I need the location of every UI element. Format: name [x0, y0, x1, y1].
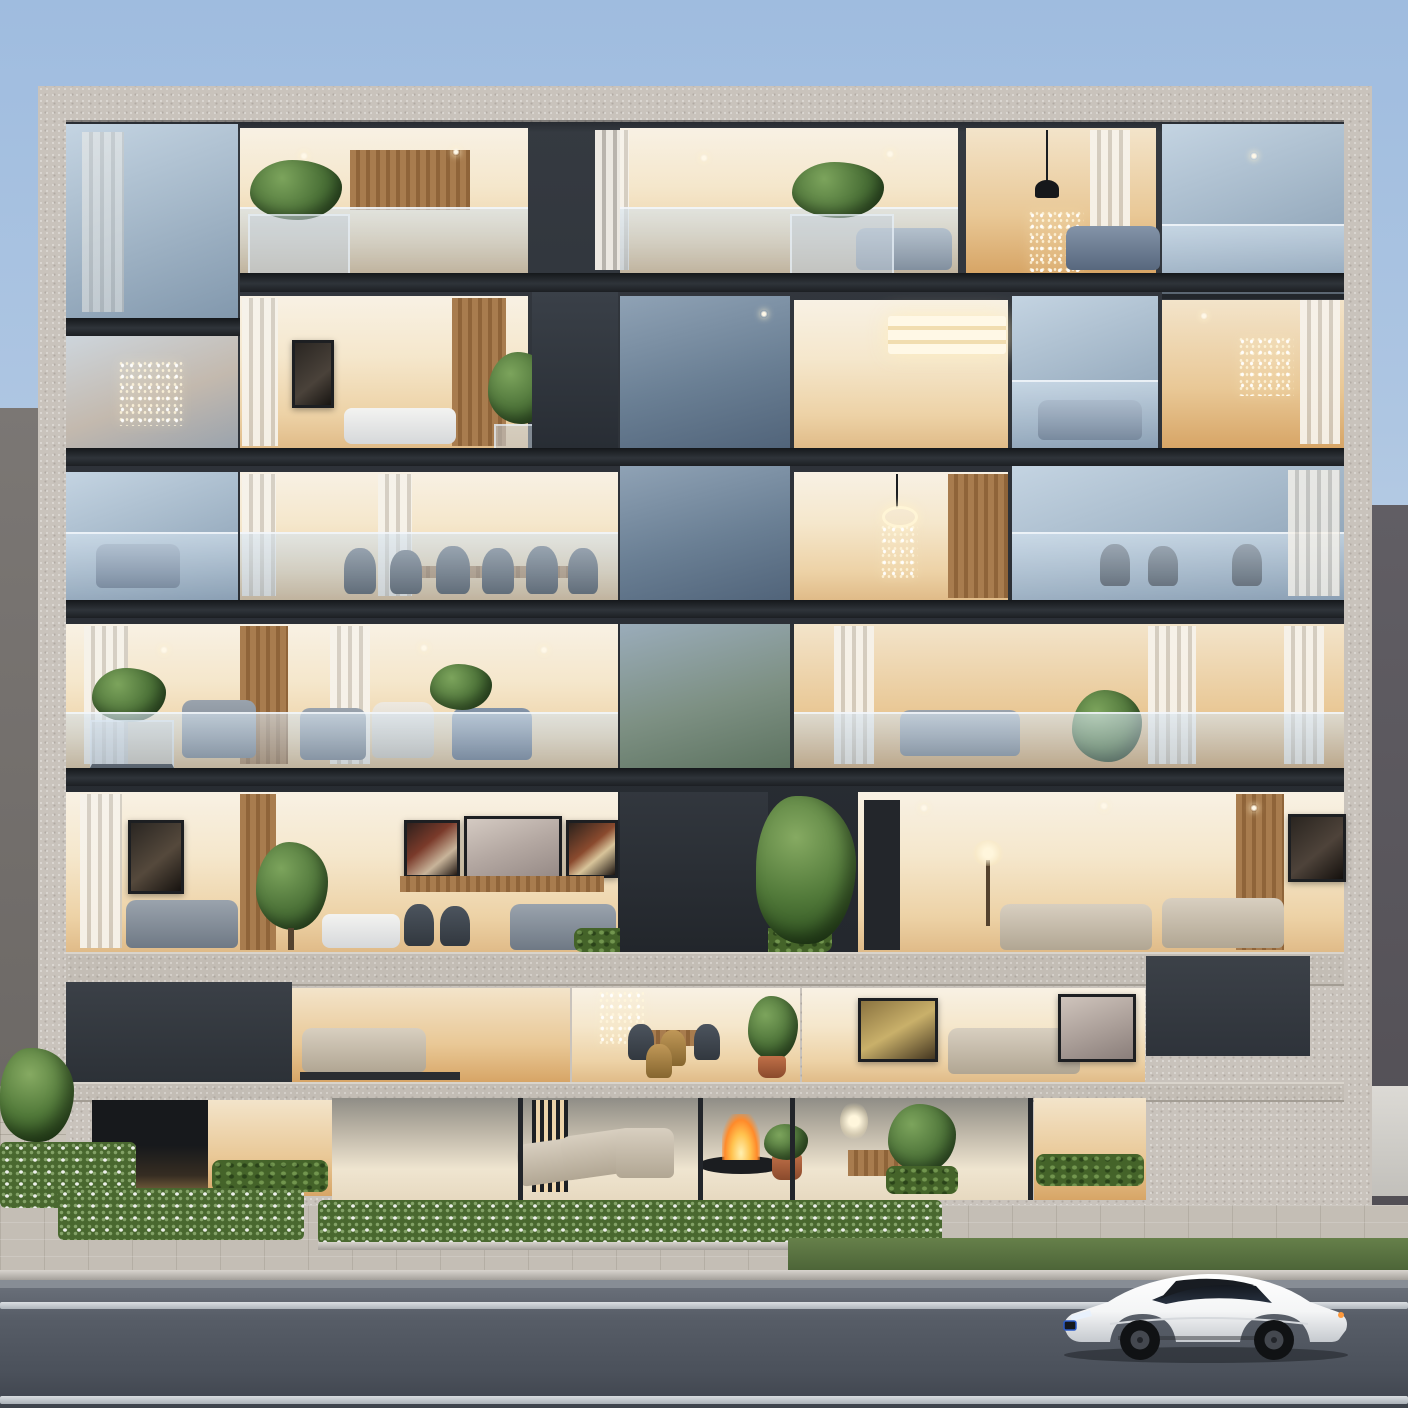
f7-skylight [888, 316, 1006, 354]
f8-light-1 [300, 152, 308, 160]
car-rear-hub [1271, 1337, 1277, 1343]
flowerbed-left-2 [58, 1188, 304, 1240]
f7-chandelier-right [1238, 336, 1294, 396]
f1-plant-hedge [886, 1166, 958, 1194]
f6-curtain-right [1288, 470, 1340, 596]
f1-hedge-right [1036, 1154, 1144, 1186]
f4-light-1 [920, 804, 928, 812]
f8-planter-box-2 [790, 214, 894, 278]
f7-curtain-right [1300, 300, 1340, 444]
f4-light-2 [1100, 802, 1108, 810]
f8-pendant-stem [1046, 130, 1048, 182]
f4-sideboard [400, 876, 604, 892]
f5-spine-glass [620, 624, 790, 768]
f7-light-2 [1200, 312, 1208, 320]
f7-bed [344, 408, 456, 444]
f8-slab-left [66, 318, 240, 336]
f4-tree-big [756, 796, 856, 944]
f7-spine-glass [620, 296, 790, 448]
f8-pendant-dome [1035, 180, 1059, 198]
f3-pot [758, 1056, 786, 1078]
tree-left [0, 1048, 74, 1142]
f1-armchair [616, 1128, 674, 1178]
f4-art-abstract-left [128, 820, 184, 894]
f6-spine-glass [620, 466, 790, 600]
f1-glass-mullion-2 [698, 1098, 703, 1200]
f6-wood-right [948, 474, 1008, 598]
f7-dark-column [532, 292, 618, 448]
f7-light-1 [760, 310, 768, 318]
f1-garage-door [1208, 1094, 1300, 1188]
f3-art-pale-right [1058, 994, 1136, 1062]
sports-car [1056, 1258, 1356, 1366]
f1-glass-mullion-4 [1028, 1098, 1033, 1200]
f7-chandelier-left [118, 360, 184, 426]
f4-spine-dark [620, 792, 768, 952]
f8-slab [240, 273, 1344, 292]
f3-dark-panel-right [1146, 956, 1310, 1056]
f4-trunk-left [288, 928, 294, 950]
f5-rail-right [794, 712, 1344, 775]
car-taillight [1338, 1312, 1344, 1318]
f7-rail-blue [1012, 380, 1158, 455]
f4-lamp-pole [986, 860, 990, 926]
f5-rail-left [66, 712, 618, 775]
f1-glass-mullion-1 [518, 1098, 523, 1200]
f4-art-right [1288, 814, 1346, 882]
f3-art-gold [858, 998, 938, 1062]
f1-glass-mullion-3 [790, 1098, 795, 1200]
f3-chair-4 [646, 1044, 672, 1078]
f6-rail-dining [240, 532, 618, 607]
f8-light-2 [452, 148, 460, 156]
car-front-hub [1137, 1337, 1143, 1343]
f5-light-1 [160, 646, 168, 654]
f1-fire-flame [722, 1114, 760, 1160]
f4-art-red [404, 820, 460, 878]
f4-daybed [322, 914, 400, 948]
f6-halo-chandelier [880, 524, 918, 578]
f8-light-3 [700, 154, 708, 162]
f3-rug [300, 1072, 460, 1080]
f6-halo-stem [896, 474, 898, 508]
car-shadow [1064, 1347, 1348, 1363]
f5-light-3 [540, 646, 548, 654]
road-lane-line-lower [0, 1396, 1408, 1404]
f8-planter-box-1 [248, 214, 350, 278]
f7-slab [66, 448, 1344, 466]
f1-lamp-glow [840, 1102, 868, 1140]
f4-art-pale [464, 816, 562, 880]
sports-car-graphic [1056, 1258, 1356, 1366]
f4-art-floral [566, 820, 618, 878]
f4-sofa-right-1 [1000, 904, 1152, 950]
f5-light-2 [420, 644, 428, 652]
f7-curtain-1 [242, 298, 278, 446]
f4-light-3 [1250, 804, 1258, 812]
f8-light-5 [1250, 152, 1258, 160]
f4-curtain-left [80, 794, 122, 948]
f4-lamp-shade [972, 840, 1004, 866]
f8-sofa-blue [1066, 226, 1160, 270]
f8-wood-a [350, 150, 470, 210]
f3-chair-3 [694, 1024, 720, 1060]
f4-chair-2 [440, 906, 470, 946]
f6-rail-left [66, 532, 238, 607]
f4-sofa-left [126, 900, 238, 948]
f6-slab [66, 600, 1344, 618]
f4-chair-1 [404, 904, 434, 946]
f4-doorway-dark [864, 800, 900, 950]
car-grille [1064, 1321, 1076, 1330]
f4-chaise-right [1162, 898, 1284, 948]
architectural-rendering-scene [0, 0, 1408, 1408]
f8-rail-b [620, 207, 958, 280]
f8-light-4 [886, 150, 894, 158]
f3-sofa-left [302, 1028, 426, 1072]
f5-slab [66, 768, 1344, 786]
f7-art-dark [292, 340, 334, 408]
f8-curtain-left [82, 132, 124, 312]
f3-dark-panel-left [66, 982, 292, 1082]
